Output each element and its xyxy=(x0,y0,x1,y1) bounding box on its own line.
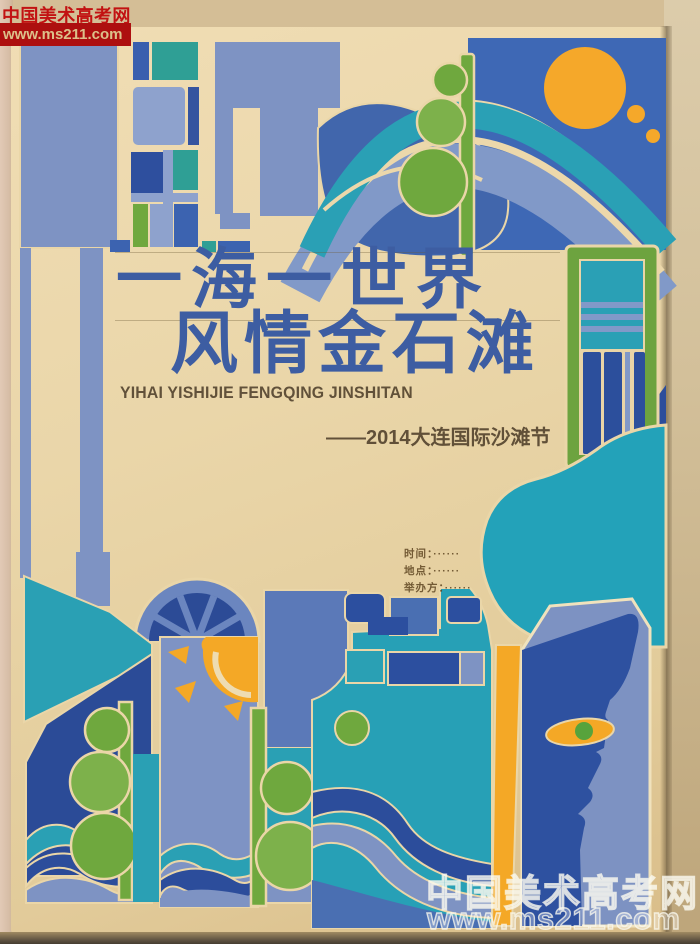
bottom-middle-panel xyxy=(160,637,258,907)
poster-title-line2: 风情金石滩 xyxy=(170,310,540,378)
info-line-organizer: 举办方：······ xyxy=(404,580,472,597)
teal-strip xyxy=(133,754,160,902)
photo-of-poster: 一海一世界 风情金石滩 YIHAI YISHIJIE FENGQING JINS… xyxy=(0,0,700,944)
info-line-place: 地点：······ xyxy=(404,563,472,580)
poster-info-block: 时间：······ 地点：······ 举办方：······ xyxy=(404,546,472,597)
watermark-top-url-bar: www.ms211.com xyxy=(0,23,131,46)
info-line-time: 时间：······ xyxy=(404,546,472,563)
window-tiles xyxy=(131,42,199,247)
fanlight-window xyxy=(135,579,259,641)
top-left-block xyxy=(20,42,118,606)
poster-pinyin: YIHAI YISHIJIE FENGQING JINSHITAN xyxy=(120,383,413,403)
watermark-top-site-url: www.ms211.com xyxy=(3,24,123,45)
poster-title-line1: 一海一世界 xyxy=(116,246,491,312)
wall-bottom xyxy=(0,932,700,944)
painting xyxy=(0,0,700,944)
poster-subtitle: ——2014大连国际沙滩节 xyxy=(326,421,551,450)
